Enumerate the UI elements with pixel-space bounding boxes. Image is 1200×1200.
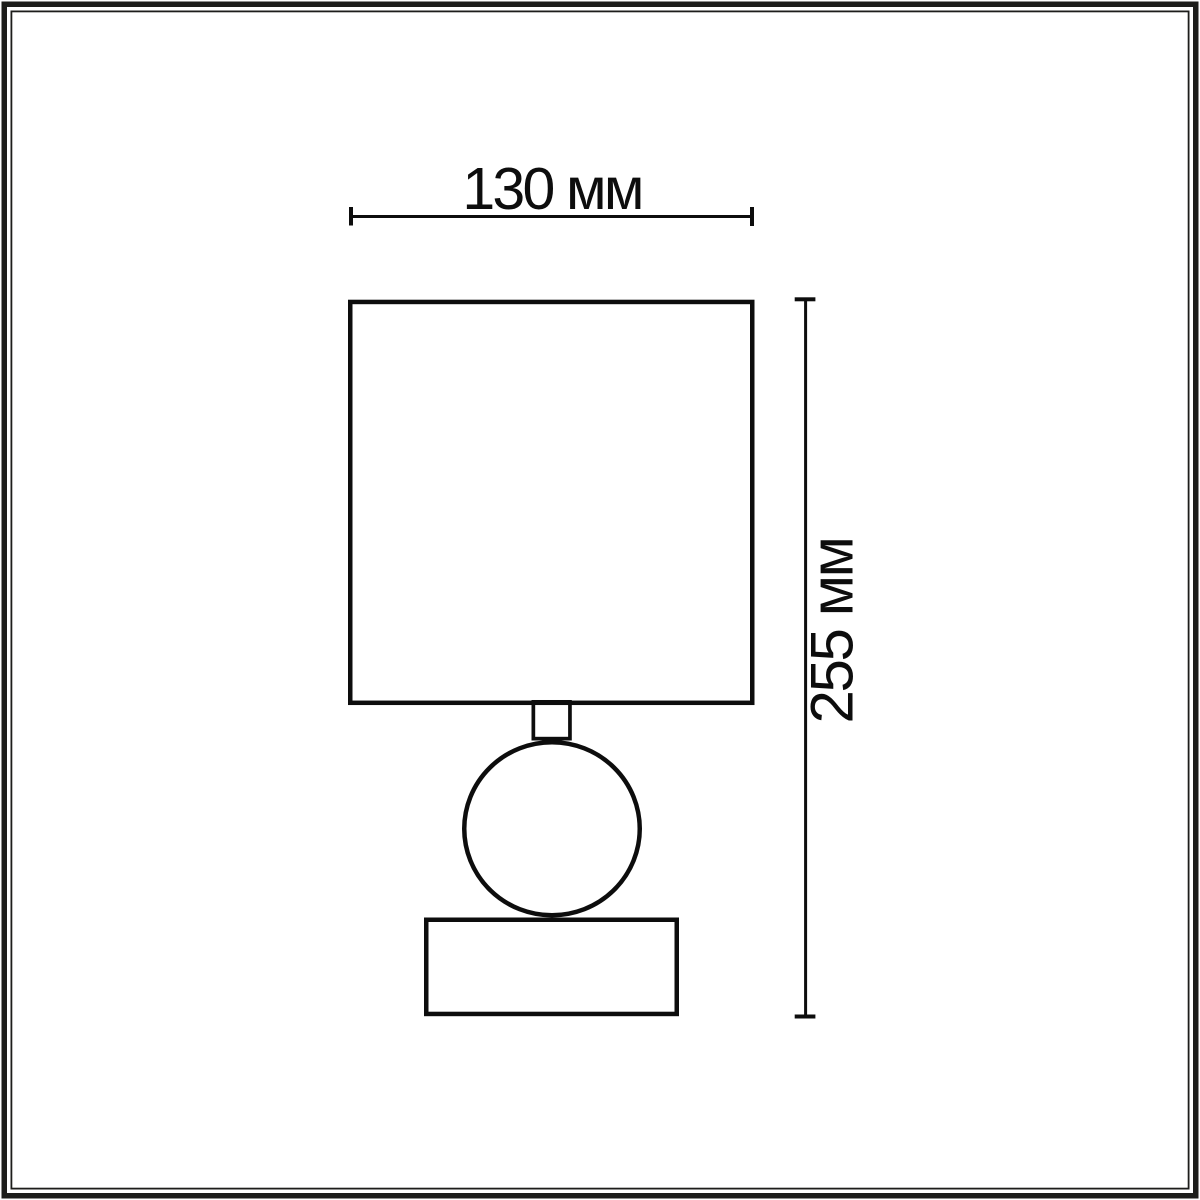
svg-text:255 мм: 255 мм	[799, 539, 866, 724]
svg-text:130 мм: 130 мм	[462, 156, 641, 222]
